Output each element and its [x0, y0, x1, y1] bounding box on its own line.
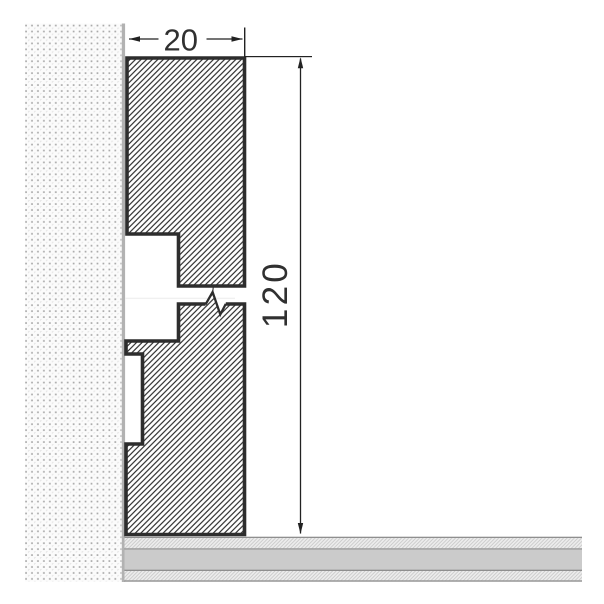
svg-text:120: 120 [256, 260, 295, 328]
svg-text:20: 20 [164, 22, 198, 57]
